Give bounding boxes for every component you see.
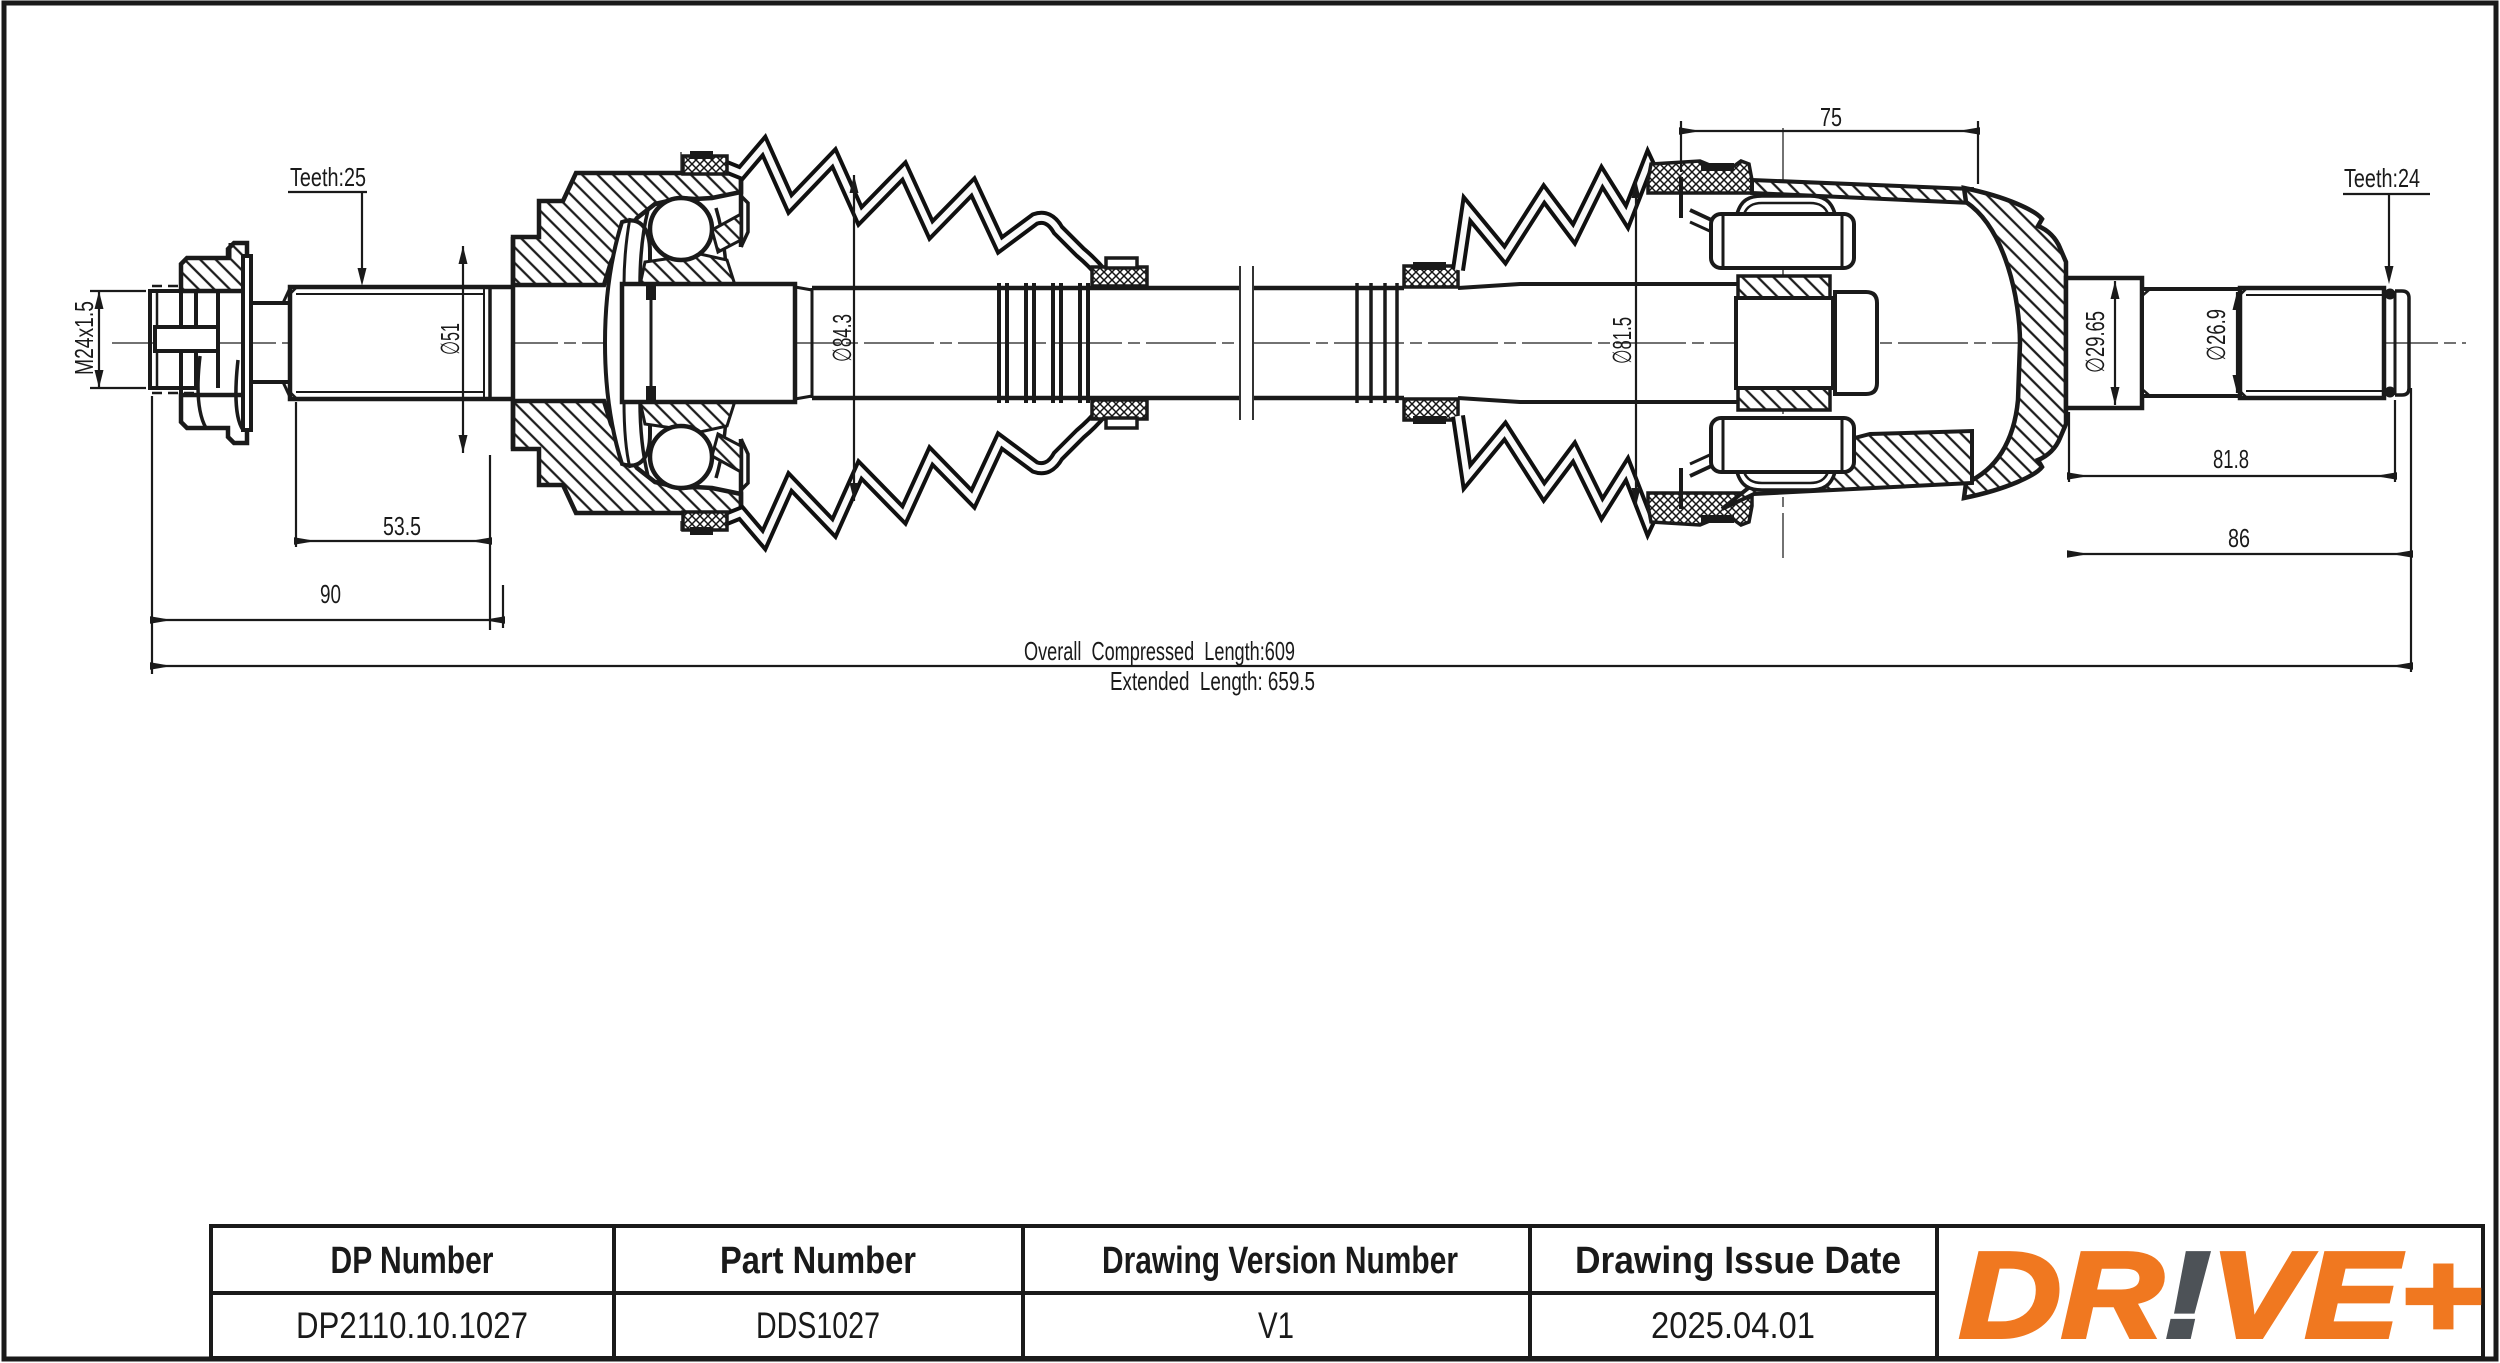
svg-text:∅81.5: ∅81.5: [1607, 317, 1637, 364]
svg-text:Part Number: Part Number: [720, 1240, 916, 1282]
svg-text:75: 75: [1820, 102, 1842, 132]
svg-text:81.8: 81.8: [2213, 444, 2249, 474]
svg-text:Teeth:24: Teeth:24: [2344, 163, 2420, 193]
svg-text:Drawing Version Number: Drawing Version Number: [1102, 1240, 1458, 1282]
svg-text:DR!VE+: DR!VE+: [1959, 1227, 2482, 1363]
svg-text:DDS1027: DDS1027: [756, 1305, 880, 1346]
svg-text:∅26.9: ∅26.9: [2201, 309, 2231, 361]
svg-text:M24x1.5: M24x1.5: [69, 301, 99, 375]
svg-text:∅29.65: ∅29.65: [2080, 311, 2110, 373]
svg-text:Teeth:25: Teeth:25: [290, 162, 366, 192]
svg-text:DP Number: DP Number: [331, 1240, 494, 1282]
svg-text:53.5: 53.5: [383, 511, 421, 541]
svg-text:2025.04.01: 2025.04.01: [1651, 1305, 1815, 1346]
svg-text:Overall Compressed Length:60: Overall Compressed Length:609: [1024, 636, 1295, 666]
svg-text:90: 90: [320, 579, 341, 609]
svg-text:DP2110.10.1027: DP2110.10.1027: [296, 1305, 528, 1346]
svg-text:Extended Length: 659.5: Extended Length: 659.5: [1110, 666, 1315, 696]
svg-text:∅84.3: ∅84.3: [827, 314, 857, 362]
svg-text:86: 86: [2228, 523, 2250, 553]
svg-text:Drawing Issue Date: Drawing Issue Date: [1575, 1240, 1901, 1282]
svg-text:V1: V1: [1258, 1305, 1294, 1346]
svg-text:∅51: ∅51: [435, 323, 465, 355]
